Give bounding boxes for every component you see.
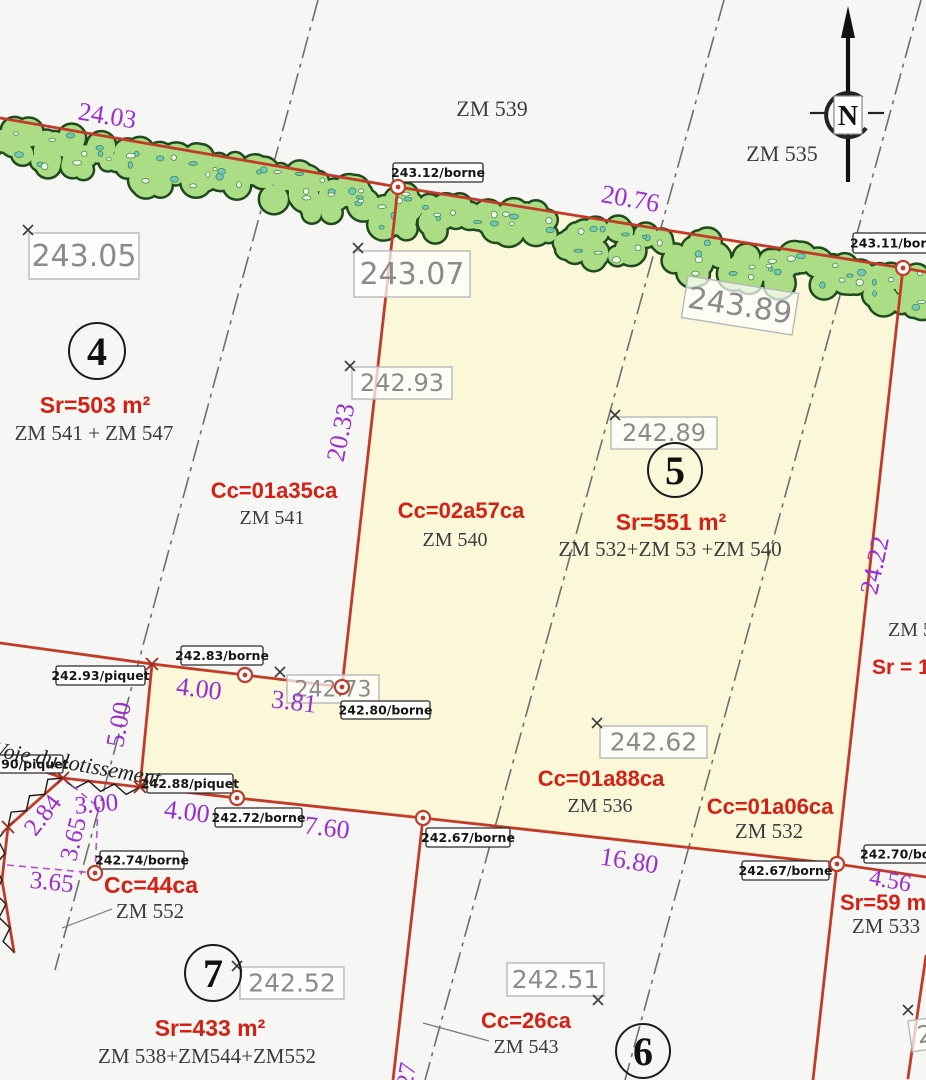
hedge-speck xyxy=(594,251,602,254)
hedge-speck xyxy=(510,214,519,219)
marker-label-box: 242.72/borne xyxy=(212,808,306,827)
marker-label-box: 242.80/borne xyxy=(339,701,433,719)
hedge-speck xyxy=(546,217,552,223)
borne-marker-icon xyxy=(335,680,349,694)
zm-label: ZM 540 xyxy=(423,529,488,551)
elevation-box: 242.52 xyxy=(240,967,344,999)
elevation-box: 242.93 xyxy=(352,367,452,399)
area-label: Cc=01a06ca xyxy=(707,794,834,819)
marker-box-label: 242.80/borne xyxy=(339,703,433,718)
marker-label-box: 243.12/borne xyxy=(391,163,485,182)
marker-label-box: 242.67/borne xyxy=(739,861,833,880)
marker-label-box: 242.93/piquet xyxy=(51,666,149,685)
borne-marker-icon xyxy=(88,866,102,880)
hedge-speck xyxy=(171,176,179,182)
area-label: Sr=503 m² xyxy=(40,392,151,418)
zm-label: ZM 536 xyxy=(568,795,633,817)
cadastral-plan: 243.05243.07243.89242.93242.89242.73242.… xyxy=(0,0,926,1080)
hedge-speck xyxy=(189,162,198,166)
area-label: Sr=551 m² xyxy=(616,509,727,535)
hedge-speck xyxy=(872,279,876,285)
hedge-puff xyxy=(424,220,446,242)
hedge-speck xyxy=(274,170,282,173)
hedge-speck xyxy=(546,227,554,232)
borne-inner xyxy=(421,816,426,821)
zm-label: ZM 535 xyxy=(746,141,818,166)
hedge-puff xyxy=(34,138,60,164)
marker-label-box: 242.74/borne xyxy=(95,851,189,869)
borne-inner xyxy=(835,862,840,867)
hedge-speck xyxy=(833,263,839,267)
hedge-speck xyxy=(404,197,412,201)
elevation-value: 242.52 xyxy=(248,969,335,998)
hedge-speck xyxy=(635,245,641,251)
borne-marker-icon xyxy=(238,668,252,682)
hedge-speck xyxy=(49,138,55,141)
zm-label: ZM 539 xyxy=(456,96,528,121)
elevation-box: 242.51 xyxy=(507,963,604,996)
zm-label: ZM 532 xyxy=(735,819,803,843)
parcel-number-value: 5 xyxy=(665,448,685,493)
hedge-speck xyxy=(157,156,164,161)
borne-inner xyxy=(396,185,401,190)
hedge-speck xyxy=(358,199,364,203)
dimension-label: 4.00 xyxy=(175,671,224,705)
hedge-speck xyxy=(590,226,597,232)
zm-label: ZM 532+ZM 53 +ZM 540 xyxy=(558,537,781,561)
area-label: Cc=01a35ca xyxy=(211,478,338,503)
hedge-speck xyxy=(578,229,584,235)
hedge-speck xyxy=(787,256,795,262)
hedge-speck xyxy=(917,300,926,303)
marker-box-label: 242.67/borne xyxy=(739,863,833,878)
marker-box-label: 242.67/borne xyxy=(421,830,515,845)
plan-canvas: 243.05243.07243.89242.93242.89242.73242.… xyxy=(0,0,926,1080)
hedge-speck xyxy=(768,259,776,263)
elevation-value: 242.89 xyxy=(622,419,706,447)
elevation-box: 243.05 xyxy=(29,233,139,279)
hedge-speck xyxy=(303,196,311,200)
hedge-speck xyxy=(436,216,440,220)
borne-inner xyxy=(93,871,98,876)
marker-label-box: 242.70/borne xyxy=(860,845,926,863)
hedge-speck xyxy=(858,269,866,276)
hedge-speck xyxy=(695,251,701,257)
area-label: Sr=433 m² xyxy=(155,1015,266,1041)
marker-box-label: 242.74/borne xyxy=(95,853,189,868)
hedge-speck xyxy=(128,162,132,169)
parcel-number-value: 7 xyxy=(203,951,223,996)
marker-box-label: 242.83/borne xyxy=(175,648,269,663)
hedge-speck xyxy=(422,205,428,209)
elevation-box: 242.62 xyxy=(600,726,707,758)
hedge-speck xyxy=(451,210,456,215)
borne-marker-icon xyxy=(230,791,244,805)
area-label: Cc=01a88ca xyxy=(538,766,665,791)
zm-label: ZM 538+ZM544+ZM552 xyxy=(98,1044,316,1068)
borne-marker-icon xyxy=(830,857,844,871)
hedge-speck xyxy=(474,221,482,224)
hedge-speck xyxy=(574,249,583,252)
dimension-label: 4.00 xyxy=(163,794,212,828)
zm-label: ZM 543 xyxy=(494,1036,559,1058)
elevation-value: 242.51 xyxy=(512,965,599,994)
hedge-speck xyxy=(873,291,877,297)
hedge-speck xyxy=(796,254,805,259)
hedge-speck xyxy=(126,153,135,158)
hedge-speck xyxy=(839,278,845,282)
marker-label-box: 242.83/borne xyxy=(175,646,269,665)
hedge-speck xyxy=(502,212,509,216)
hedge-speck xyxy=(356,196,363,199)
elevation-value: 242.93 xyxy=(360,369,444,397)
hedge-speck xyxy=(66,133,75,138)
dimension-label: 3.65 xyxy=(29,867,75,898)
hedge-speck xyxy=(692,271,700,276)
hedge-speck xyxy=(206,172,210,178)
hedge-speck xyxy=(328,193,335,197)
marker-box-label: 243.11/borne xyxy=(850,236,926,251)
dimension-label: 7.60 xyxy=(303,810,352,844)
marker-box-label: 242.70/borne xyxy=(860,847,926,862)
dimension-label: 3.00 xyxy=(73,789,119,820)
elevation-value: 243.05 xyxy=(32,239,137,274)
hedge-speck xyxy=(107,157,111,161)
hedge-speck xyxy=(378,205,387,209)
borne-inner xyxy=(901,266,906,271)
zm-label: ZM 552 xyxy=(116,899,184,923)
hedge-speck xyxy=(600,226,605,232)
north-letter: N xyxy=(838,101,858,132)
elevation-box: 243.07 xyxy=(354,251,470,297)
hedge-speck xyxy=(15,152,24,158)
hedge-speck xyxy=(320,178,325,183)
hedge-speck xyxy=(729,271,737,275)
borne-marker-icon xyxy=(896,261,910,275)
hedge-speck xyxy=(237,182,242,188)
hedge-speck xyxy=(82,151,88,156)
borne-inner xyxy=(243,673,248,678)
dimension-label: 3.81 xyxy=(270,684,319,718)
hedge-speck xyxy=(190,184,197,188)
zm-label: ZM 5 xyxy=(888,619,926,641)
marker-label-box: 243.11/borne xyxy=(850,233,926,253)
borne-marker-icon xyxy=(416,811,430,825)
hedge-speck xyxy=(260,167,267,173)
elevation-value: 243.07 xyxy=(360,257,465,292)
borne-inner xyxy=(340,685,345,690)
marker-box-label: 242.93/piquet xyxy=(51,668,149,683)
hedge-speck xyxy=(218,169,226,175)
borne-inner xyxy=(235,796,240,801)
hedge-speck xyxy=(359,189,364,193)
hedge-speck xyxy=(888,278,894,282)
hedge-speck xyxy=(213,168,217,171)
parcel-number-value: 4 xyxy=(87,329,107,374)
hedge-puff xyxy=(706,244,728,266)
hedge-speck xyxy=(749,265,755,269)
hedge-speck xyxy=(748,274,753,280)
elevation-value: 242.62 xyxy=(610,728,697,757)
hedge-speck xyxy=(434,213,441,216)
marker-box-label: 243.12/borne xyxy=(391,165,485,180)
hedge-speck xyxy=(349,188,356,195)
hedge-speck xyxy=(171,155,176,161)
hedge-speck xyxy=(98,151,103,156)
hedge-speck xyxy=(774,269,781,275)
zm-label: ZM 541 + ZM 547 xyxy=(15,421,174,445)
marker-box-label: 242.72/borne xyxy=(212,810,306,825)
hedge-speck xyxy=(490,221,498,226)
hedge-speck xyxy=(820,282,826,288)
hedge-speck xyxy=(491,211,497,218)
hedge-puff xyxy=(554,234,572,252)
parcel-number-value: 6 xyxy=(633,1029,653,1074)
hedge-speck xyxy=(142,179,149,184)
zm-label: ZM 541 xyxy=(240,507,305,529)
hedge-speck xyxy=(642,235,646,238)
hedge-speck xyxy=(303,188,309,194)
hedge-speck xyxy=(766,264,772,268)
hedge-speck xyxy=(612,257,620,263)
hedge-speck xyxy=(912,304,920,310)
hedge-speck xyxy=(621,233,629,236)
marker-label-box: 242.67/borne xyxy=(421,828,515,847)
area-label: Cc=44ca xyxy=(104,872,198,898)
elevation-box: 242.89 xyxy=(611,417,717,449)
hedge-speck xyxy=(96,146,103,151)
hedge-puff xyxy=(396,219,416,239)
zm-label: ZM 533 xyxy=(852,914,920,938)
hedge-speck xyxy=(856,279,863,286)
hedge-speck xyxy=(14,132,19,136)
area-label: Sr=59 m² xyxy=(840,890,926,915)
hedge-speck xyxy=(657,240,662,246)
hedge-speck xyxy=(510,222,515,226)
hedge-speck xyxy=(42,163,48,170)
hedge-speck xyxy=(379,225,384,229)
hedge-puff xyxy=(303,204,321,222)
area-label: Cc=26ca xyxy=(481,1008,572,1033)
hedge-puff xyxy=(582,247,605,270)
hedge-speck xyxy=(73,160,82,165)
area-label: Cc=02a57ca xyxy=(398,498,525,523)
hedge-speck xyxy=(295,172,303,175)
area-label: Sr = 1 xyxy=(872,656,926,679)
borne-marker-icon xyxy=(391,180,405,194)
hedge-speck xyxy=(704,240,710,246)
hedge-speck xyxy=(847,274,854,277)
